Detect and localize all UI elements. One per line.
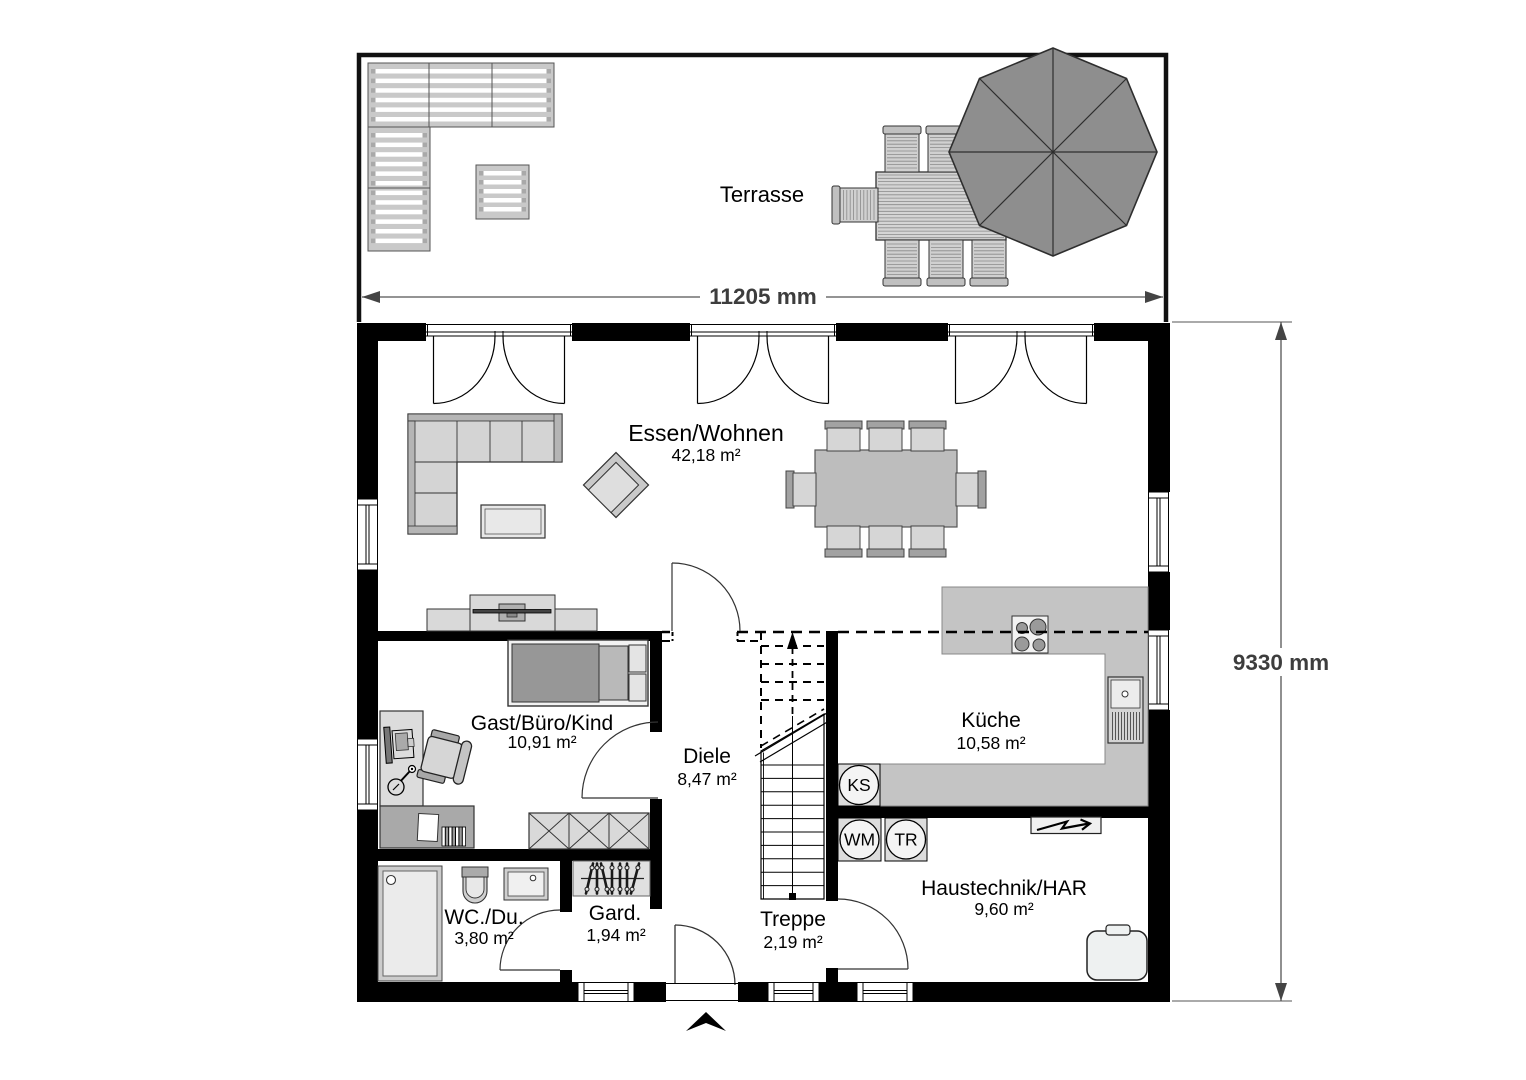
svg-text:Gard.: Gard.: [589, 902, 642, 925]
svg-text:Terrasse: Terrasse: [720, 182, 804, 207]
svg-text:1,94 m²: 1,94 m²: [586, 925, 645, 945]
svg-text:Diele: Diele: [683, 745, 731, 768]
svg-text:KS: KS: [847, 775, 870, 795]
svg-text:42,18 m²: 42,18 m²: [671, 445, 740, 465]
svg-text:8,47 m²: 8,47 m²: [677, 769, 736, 789]
svg-text:10,91 m²: 10,91 m²: [507, 732, 576, 752]
svg-text:Essen/Wohnen: Essen/Wohnen: [628, 420, 784, 446]
svg-text:9,60 m²: 9,60 m²: [974, 899, 1033, 919]
svg-text:2,19 m²: 2,19 m²: [763, 932, 822, 952]
svg-text:11205 mm: 11205 mm: [709, 284, 817, 309]
svg-text:TR: TR: [894, 830, 917, 850]
svg-text:WM: WM: [844, 830, 875, 850]
svg-text:Treppe: Treppe: [760, 908, 826, 931]
svg-text:3,80 m²: 3,80 m²: [454, 928, 513, 948]
svg-text:Küche: Küche: [961, 709, 1021, 732]
svg-text:10,58 m²: 10,58 m²: [956, 733, 1025, 753]
svg-text:9330 mm: 9330 mm: [1233, 650, 1329, 675]
svg-text:WC./Du.: WC./Du.: [444, 906, 523, 929]
svg-text:Haustechnik/HAR: Haustechnik/HAR: [921, 877, 1087, 900]
